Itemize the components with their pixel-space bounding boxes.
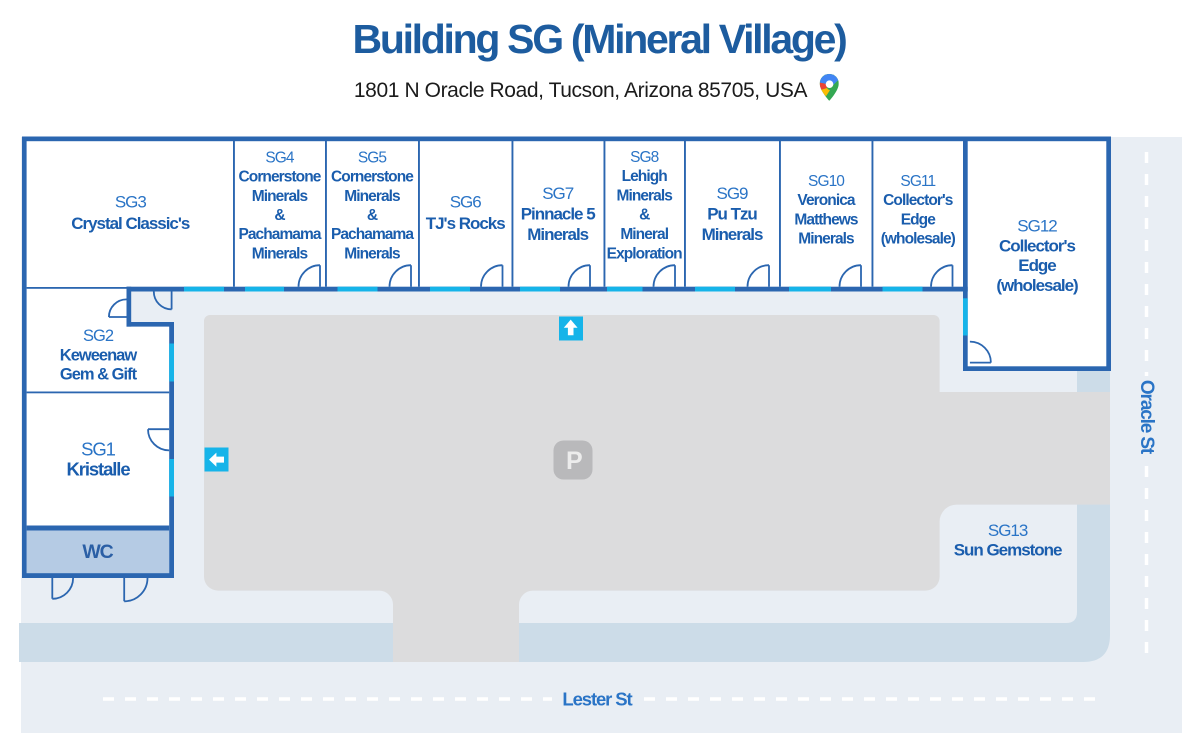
svg-text:Mineral: Mineral <box>620 226 668 243</box>
svg-text:Gem & Gift: Gem & Gift <box>60 366 138 384</box>
svg-text:Sun Gemstone: Sun Gemstone <box>954 541 1062 560</box>
svg-text:Oracle St: Oracle St <box>1136 380 1157 455</box>
svg-text:SG1: SG1 <box>81 438 116 459</box>
svg-text:Pinnacle 5: Pinnacle 5 <box>521 205 595 224</box>
svg-text:Minerals: Minerals <box>616 187 672 204</box>
svg-text:Cornerstone: Cornerstone <box>331 169 414 186</box>
svg-text:Minerals: Minerals <box>798 231 854 248</box>
svg-text:Minerals: Minerals <box>344 245 400 262</box>
svg-text:Pachamama: Pachamama <box>238 226 321 243</box>
svg-text:SG4: SG4 <box>265 149 295 166</box>
svg-text:1801 N Oracle Road, Tucson, Ar: 1801 N Oracle Road, Tucson, Arizona 8570… <box>354 79 808 102</box>
svg-text:Edge: Edge <box>1018 256 1056 275</box>
svg-text:&: & <box>639 207 650 224</box>
svg-text:Minerals: Minerals <box>252 245 308 262</box>
svg-text:SG7: SG7 <box>542 184 574 203</box>
svg-text:Collector's: Collector's <box>999 236 1076 255</box>
svg-text:Edge: Edge <box>901 211 936 228</box>
svg-text:SG13: SG13 <box>988 521 1028 540</box>
svg-text:Lester St: Lester St <box>562 689 632 710</box>
svg-text:Exploration: Exploration <box>607 245 682 262</box>
svg-text:Minerals: Minerals <box>527 225 588 244</box>
svg-text:&: & <box>274 207 285 224</box>
svg-text:Pachamama: Pachamama <box>331 226 414 243</box>
svg-text:Kristalle: Kristalle <box>66 458 130 479</box>
svg-text:SG6: SG6 <box>450 193 482 212</box>
svg-text:Minerals: Minerals <box>344 188 400 205</box>
svg-text:WC: WC <box>82 541 113 563</box>
svg-text:SG2: SG2 <box>83 327 114 345</box>
svg-text:(wholesale): (wholesale) <box>881 231 956 248</box>
svg-text:TJ's Rocks: TJ's Rocks <box>426 214 505 233</box>
svg-text:Lehigh: Lehigh <box>622 168 668 185</box>
svg-text:(wholesale): (wholesale) <box>996 276 1078 295</box>
svg-text:Minerals: Minerals <box>252 188 308 205</box>
svg-text:Matthews: Matthews <box>794 211 857 228</box>
svg-text:Cornerstone: Cornerstone <box>239 169 322 186</box>
svg-text:Veronica: Veronica <box>797 192 855 209</box>
svg-text:SG8: SG8 <box>630 149 659 166</box>
svg-text:Keweenaw: Keweenaw <box>60 346 138 364</box>
svg-text:&: & <box>367 207 378 224</box>
svg-text:Building SG (Mineral Village): Building SG (Mineral Village) <box>353 16 847 62</box>
svg-text:SG12: SG12 <box>1017 217 1057 236</box>
svg-text:Crystal Classic's: Crystal Classic's <box>71 214 190 233</box>
svg-text:Pu Tzu: Pu Tzu <box>707 205 757 224</box>
svg-text:SG3: SG3 <box>115 193 147 212</box>
svg-text:Minerals: Minerals <box>702 225 763 244</box>
svg-text:SG11: SG11 <box>900 173 935 190</box>
svg-text:P: P <box>566 447 583 475</box>
svg-text:SG5: SG5 <box>358 149 387 166</box>
svg-text:SG10: SG10 <box>808 173 845 190</box>
svg-text:Collector's: Collector's <box>883 192 953 209</box>
svg-text:SG9: SG9 <box>717 184 749 203</box>
